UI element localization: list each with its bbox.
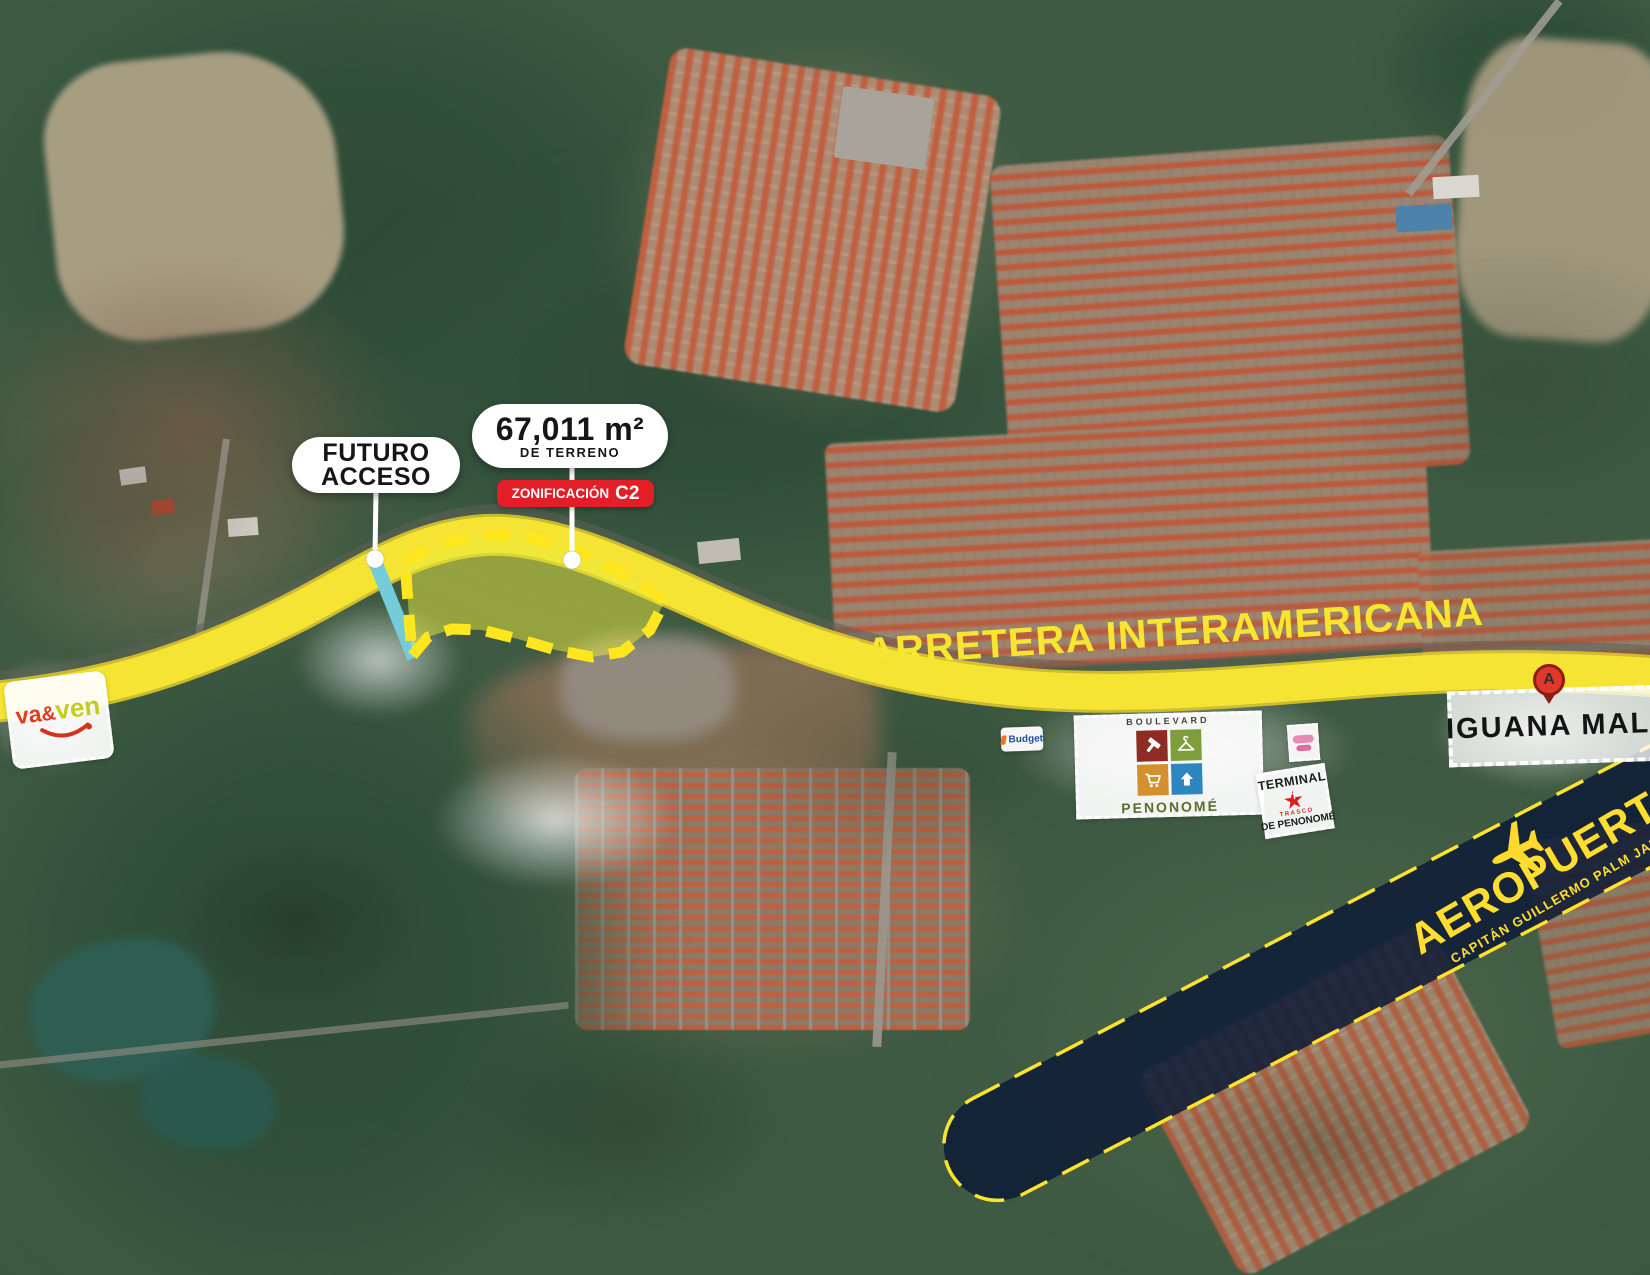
boulevard-icon-grid: [1136, 729, 1203, 796]
boulevard-line1: BOULEVARD: [1126, 714, 1210, 726]
hammer-icon: [1141, 735, 1163, 757]
pin-letter: A: [1543, 671, 1555, 689]
zoning-label: ZONIFICACIÓN: [512, 486, 610, 501]
arrow-tile: [1170, 763, 1202, 795]
budget-flag-icon: [1000, 735, 1006, 744]
boulevard-penonome-logo: BOULEVARD: [1074, 711, 1265, 820]
budget-label: Budget: [1008, 733, 1043, 745]
shopping-cart-icon: [1142, 769, 1164, 791]
parcel-area-value: 67,011 m²: [496, 413, 645, 445]
vaven-text-ven: ven: [54, 690, 102, 725]
vaven-text-va: va: [14, 700, 43, 729]
pink-logo-mark-icon: [1292, 734, 1314, 743]
up-arrow-icon: [1176, 768, 1198, 790]
hammer-tile: [1136, 730, 1168, 762]
vaven-store-logo: va&ven: [3, 670, 115, 770]
cart-tile: [1136, 764, 1168, 796]
callout-dot: [366, 550, 384, 568]
future-access-line1: FUTURO: [322, 441, 429, 466]
boulevard-line2: PENONOMÉ: [1121, 797, 1219, 816]
callout-dot: [563, 551, 581, 569]
terminal-penonome-logo: TERMINAL T TRASCO DE PENONOMÉ: [1255, 763, 1334, 839]
budget-logo: Budget: [1001, 726, 1044, 751]
future-access-callout: FUTURO ACCESO: [292, 437, 460, 493]
callout-line: [375, 490, 376, 556]
pink-logo-mark-icon: [1296, 744, 1311, 751]
pin-a-marker-icon: A: [1533, 664, 1565, 696]
future-access-line2: ACCESO: [321, 465, 431, 490]
small-store-logo: [1287, 723, 1321, 762]
trasco-star-letter: T: [1282, 789, 1307, 803]
parcel-area-note: DE TERRENO: [520, 445, 620, 460]
zoning-badge: ZONIFICACIÓN C2: [497, 480, 654, 507]
hanger-tile: [1170, 729, 1202, 761]
satellite-marketing-map: FUTURO ACCESO 67,011 m² DE TERRENO ZONIF…: [0, 0, 1650, 1275]
trasco-star-icon: T: [1281, 787, 1308, 811]
parcel-area-callout: 67,011 m² DE TERRENO: [472, 404, 668, 468]
iguana-mall-label: IGUANA MALL: [1446, 706, 1650, 746]
hanger-icon: [1175, 734, 1197, 756]
map-pin-a: A: [1533, 664, 1565, 696]
zoning-code: C2: [615, 483, 639, 505]
pin-tail-icon: [1542, 693, 1556, 704]
